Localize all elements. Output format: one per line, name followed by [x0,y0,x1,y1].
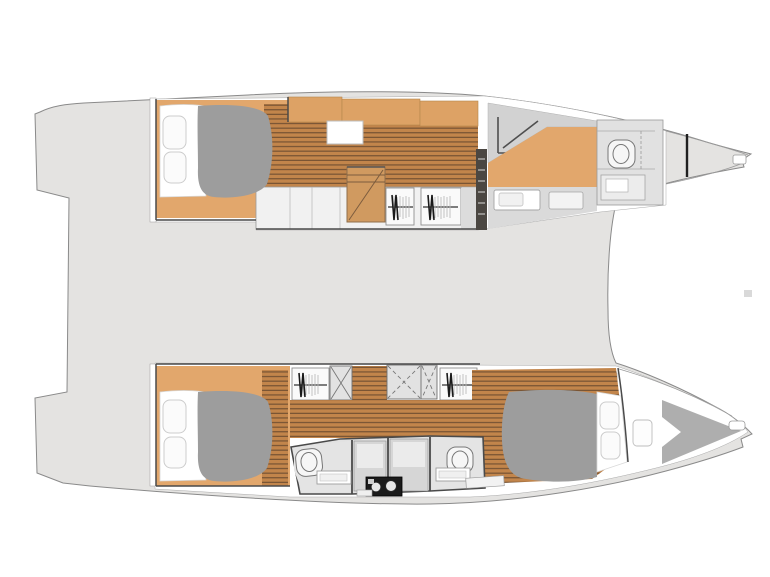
upper-wardrobe-1 [386,188,414,225]
lower-corridor-plank-floor [290,400,472,438]
anchor-fitting [729,421,745,430]
bed-duvet [198,105,273,198]
step-panel [357,490,372,496]
upper-hull [150,96,748,230]
lower-hull [150,363,748,497]
pillow [600,402,619,429]
upper-sideboard-1 [288,97,342,122]
lower-wet-unit [291,436,504,496]
pillow [163,116,186,149]
upper-bathroom-sink [606,179,628,192]
forward-bathroom-sink [439,471,466,478]
upper-vanity-counter-2 [549,192,583,209]
lower-plank-gap [352,366,387,400]
floor-plan-canvas [0,0,770,577]
upper-aft-berth [160,105,272,198]
lower-aft-berth [160,391,272,482]
lower-wardrobe-2 [440,368,477,400]
upper-staircase [347,167,385,222]
upper-vanity-sink [499,193,523,206]
pillow [164,437,186,468]
upper-sideboard-3 [420,101,478,126]
upper-wardrobe-2 [421,188,461,225]
upper-bathroom [597,120,663,205]
hull-hatch [633,420,652,446]
deck-fitting-mark [744,290,752,297]
upper-louver-bulkhead [476,149,487,230]
cross-locker-large [387,365,437,399]
upper-row-end-panel [461,188,477,229]
pillow [164,152,186,183]
bed-duvet [502,390,597,482]
pillow [601,432,620,459]
stair-landing-inset-2 [393,442,425,467]
pillow [163,400,186,433]
anchor-fitting [733,155,746,164]
lower-wardrobe-1 [292,368,329,400]
bed-duvet [198,391,273,482]
catamaran-floor-plan [0,0,770,577]
lower-cabin-outer-liner [150,364,156,486]
cross-locker-small [330,366,352,400]
toilet-icon [608,140,635,168]
upper-overhead-hatch [327,121,363,144]
aft-bathroom-sink [320,474,347,481]
upper-cabin-outer-liner [150,98,156,222]
stair-landing-inset-1 [357,444,383,468]
